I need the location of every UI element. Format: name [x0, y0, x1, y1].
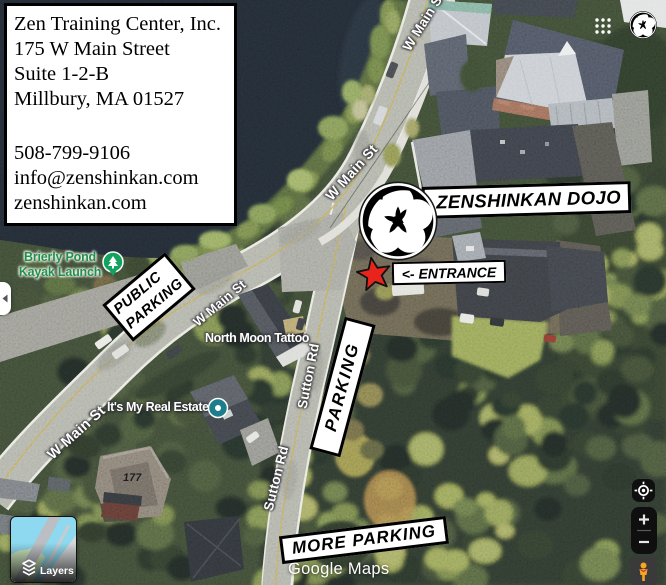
svg-text:Layers: Layers: [40, 565, 74, 577]
